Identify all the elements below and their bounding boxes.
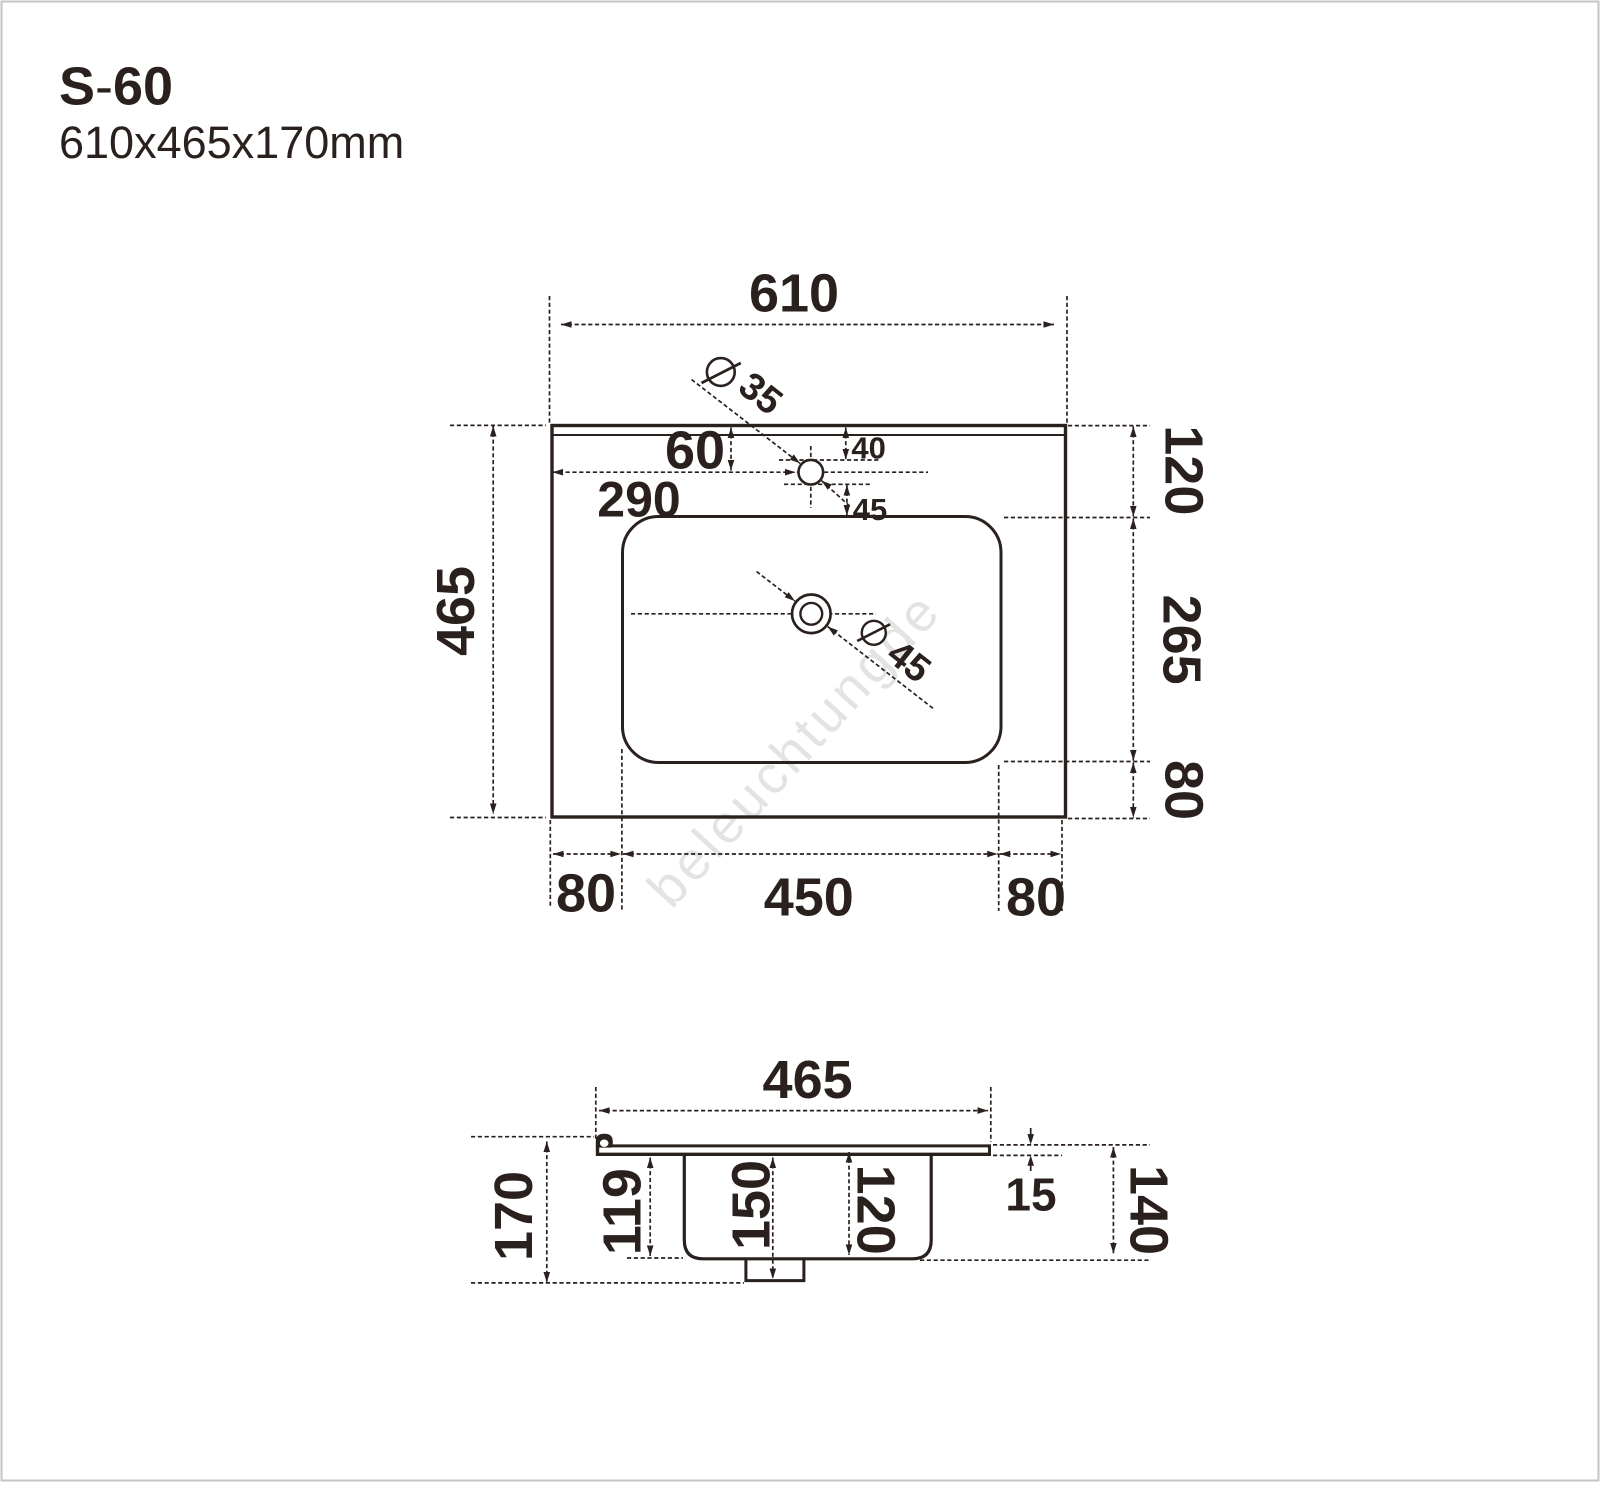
svg-text:45: 45 [853,492,887,527]
svg-text:120: 120 [1153,425,1213,515]
svg-text:610: 610 [749,264,839,324]
svg-text:S-60: S-60 [59,57,173,117]
svg-text:290: 290 [597,472,680,528]
svg-text:140: 140 [1118,1165,1178,1255]
svg-text:450: 450 [764,868,854,928]
svg-text:465: 465 [763,1050,853,1110]
svg-text:40: 40 [851,430,885,465]
svg-text:120: 120 [846,1165,906,1255]
svg-text:150: 150 [721,1160,781,1250]
svg-text:80: 80 [556,864,616,924]
svg-text:610x465x170mm: 610x465x170mm [59,117,404,168]
svg-text:265: 265 [1151,595,1211,685]
svg-text:80: 80 [1153,760,1213,820]
svg-text:80: 80 [1006,868,1066,928]
svg-text:465: 465 [426,566,486,656]
svg-text:119: 119 [592,1168,652,1255]
svg-text:15: 15 [1005,1169,1056,1221]
svg-text:170: 170 [484,1171,544,1261]
